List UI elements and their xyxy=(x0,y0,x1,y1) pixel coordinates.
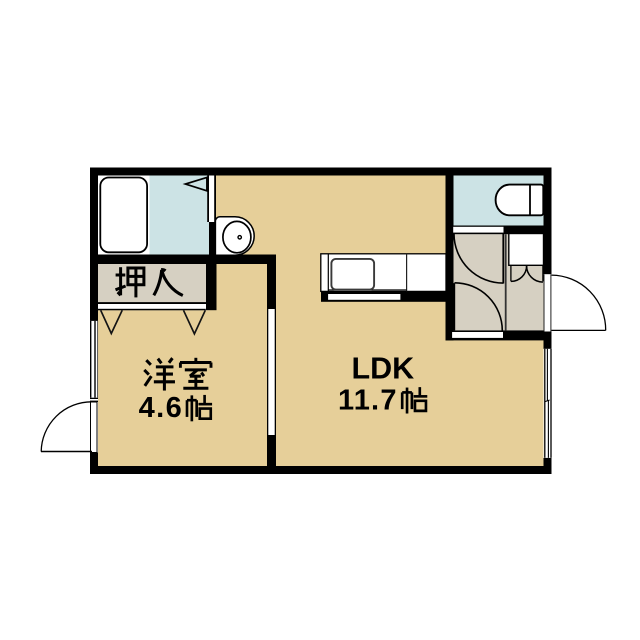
svg-text:4.6: 4.6 xyxy=(139,392,184,424)
svg-text:11.7: 11.7 xyxy=(338,385,398,417)
svg-text:LDK: LDK xyxy=(352,352,415,386)
